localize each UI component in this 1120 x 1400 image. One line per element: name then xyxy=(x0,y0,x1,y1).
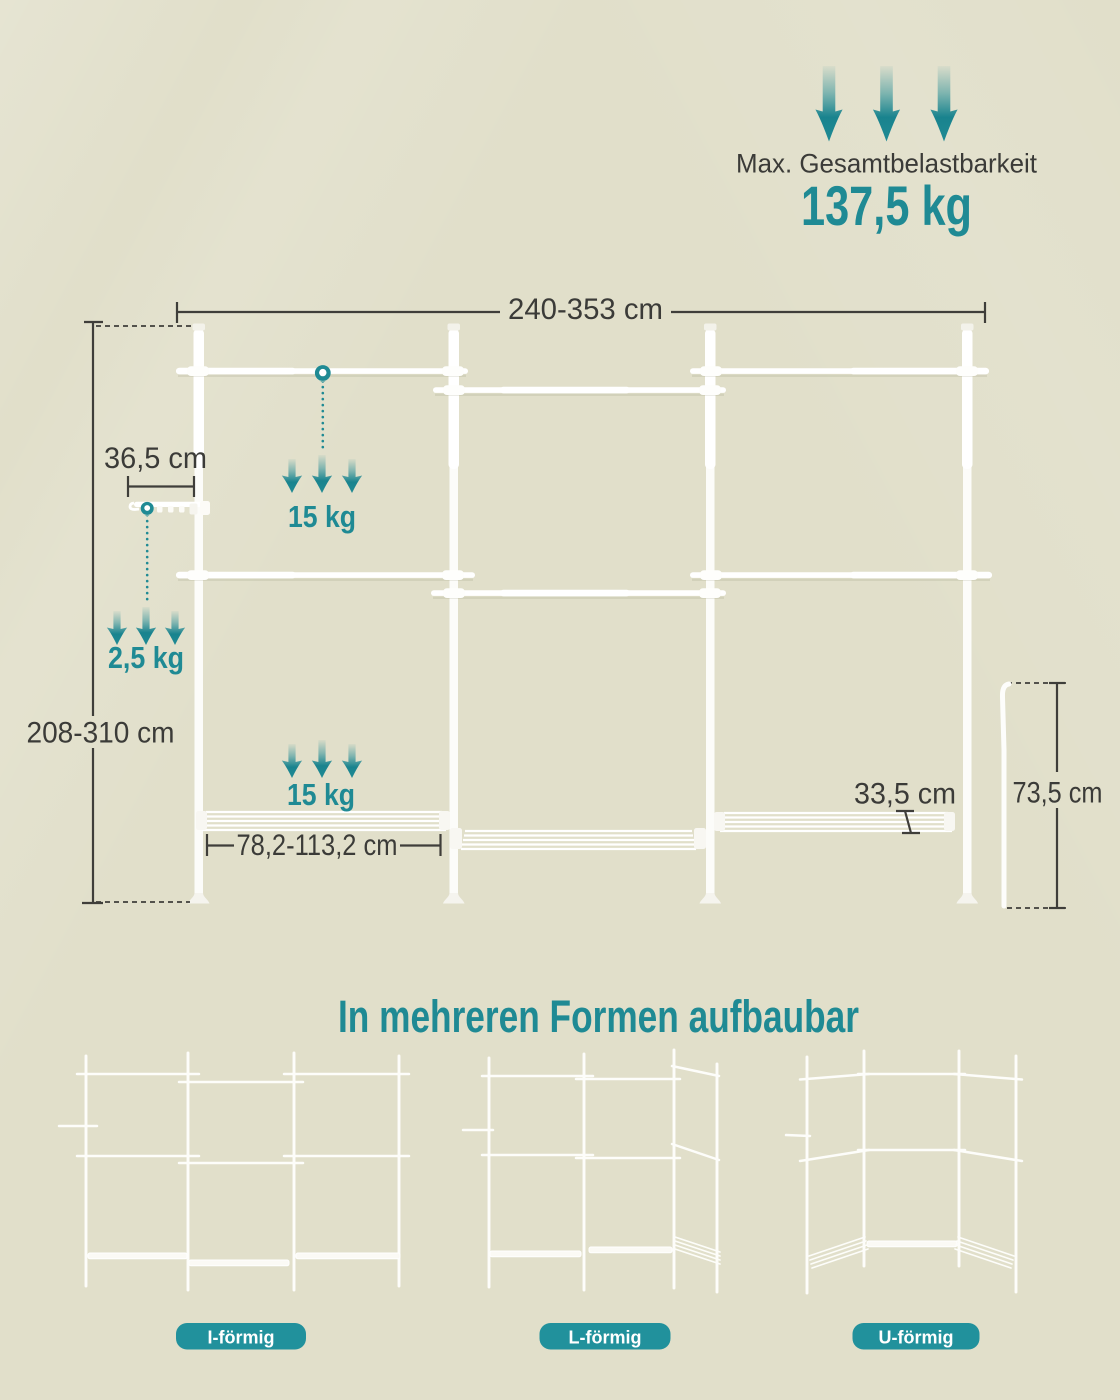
svg-text:73,5 cm: 73,5 cm xyxy=(1013,777,1103,810)
svg-text:2,5 kg: 2,5 kg xyxy=(108,640,184,675)
svg-text:15 kg: 15 kg xyxy=(287,777,355,812)
svg-text:U-förmig: U-förmig xyxy=(879,1328,954,1348)
svg-text:36,5 cm: 36,5 cm xyxy=(104,442,207,475)
svg-text:137,5 kg: 137,5 kg xyxy=(801,174,972,237)
svg-text:I-förmig: I-förmig xyxy=(208,1328,275,1348)
svg-text:33,5 cm: 33,5 cm xyxy=(854,778,956,811)
svg-text:240-353 cm: 240-353 cm xyxy=(508,293,663,326)
svg-text:L-förmig: L-förmig xyxy=(569,1328,642,1348)
svg-text:208-310 cm: 208-310 cm xyxy=(27,717,175,750)
svg-text:In mehreren Formen aufbaubar: In mehreren Formen aufbaubar xyxy=(338,991,859,1042)
svg-text:15 kg: 15 kg xyxy=(288,499,356,534)
svg-text:78,2-113,2 cm: 78,2-113,2 cm xyxy=(237,829,398,862)
